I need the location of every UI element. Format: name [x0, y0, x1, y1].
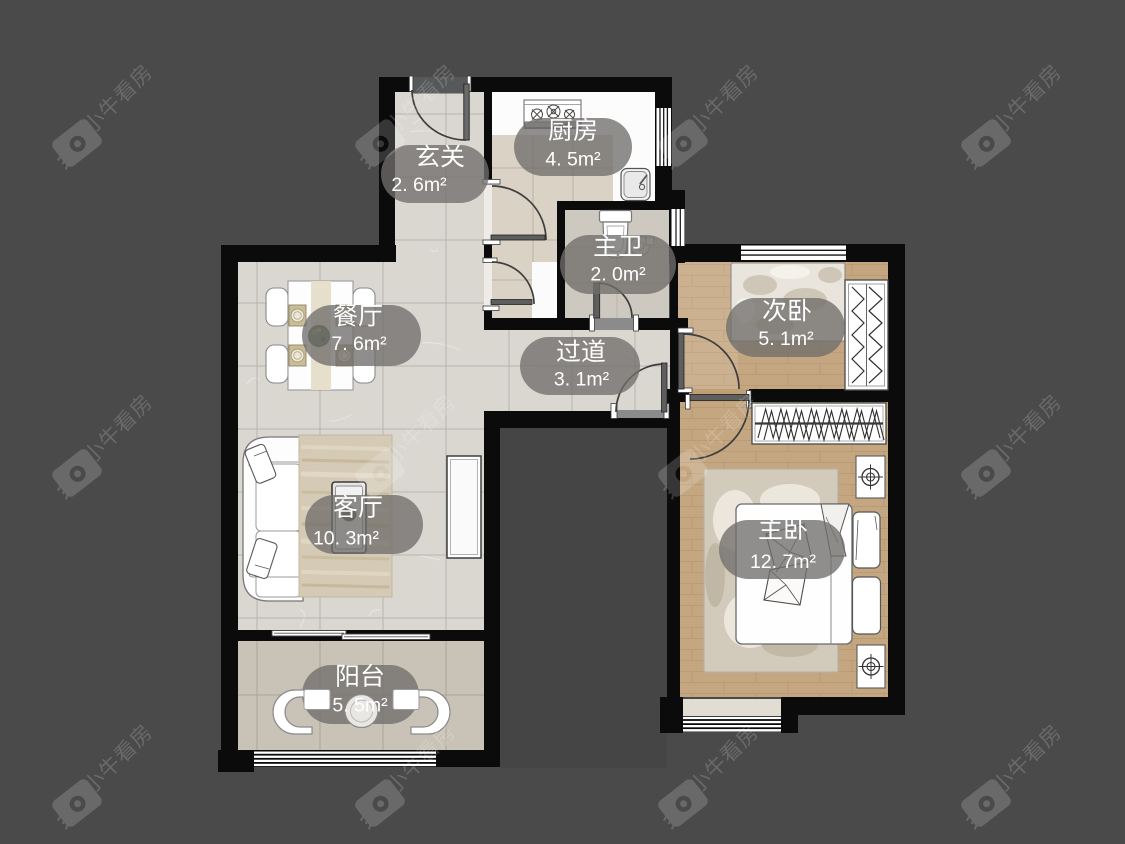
svg-text:2. 0m²: 2. 0m² — [590, 264, 646, 286]
svg-text:10. 3m²: 10. 3m² — [313, 528, 380, 550]
svg-text:5. 1m²: 5. 1m² — [758, 328, 814, 350]
svg-text:4. 5m²: 4. 5m² — [545, 149, 601, 171]
svg-text:12. 7m²: 12. 7m² — [750, 551, 817, 573]
svg-text:7. 6m²: 7. 6m² — [331, 333, 387, 355]
svg-text:2. 6m²: 2. 6m² — [391, 174, 447, 196]
svg-text:3. 1m²: 3. 1m² — [554, 369, 610, 391]
svg-text:5. 5m²: 5. 5m² — [332, 695, 388, 717]
